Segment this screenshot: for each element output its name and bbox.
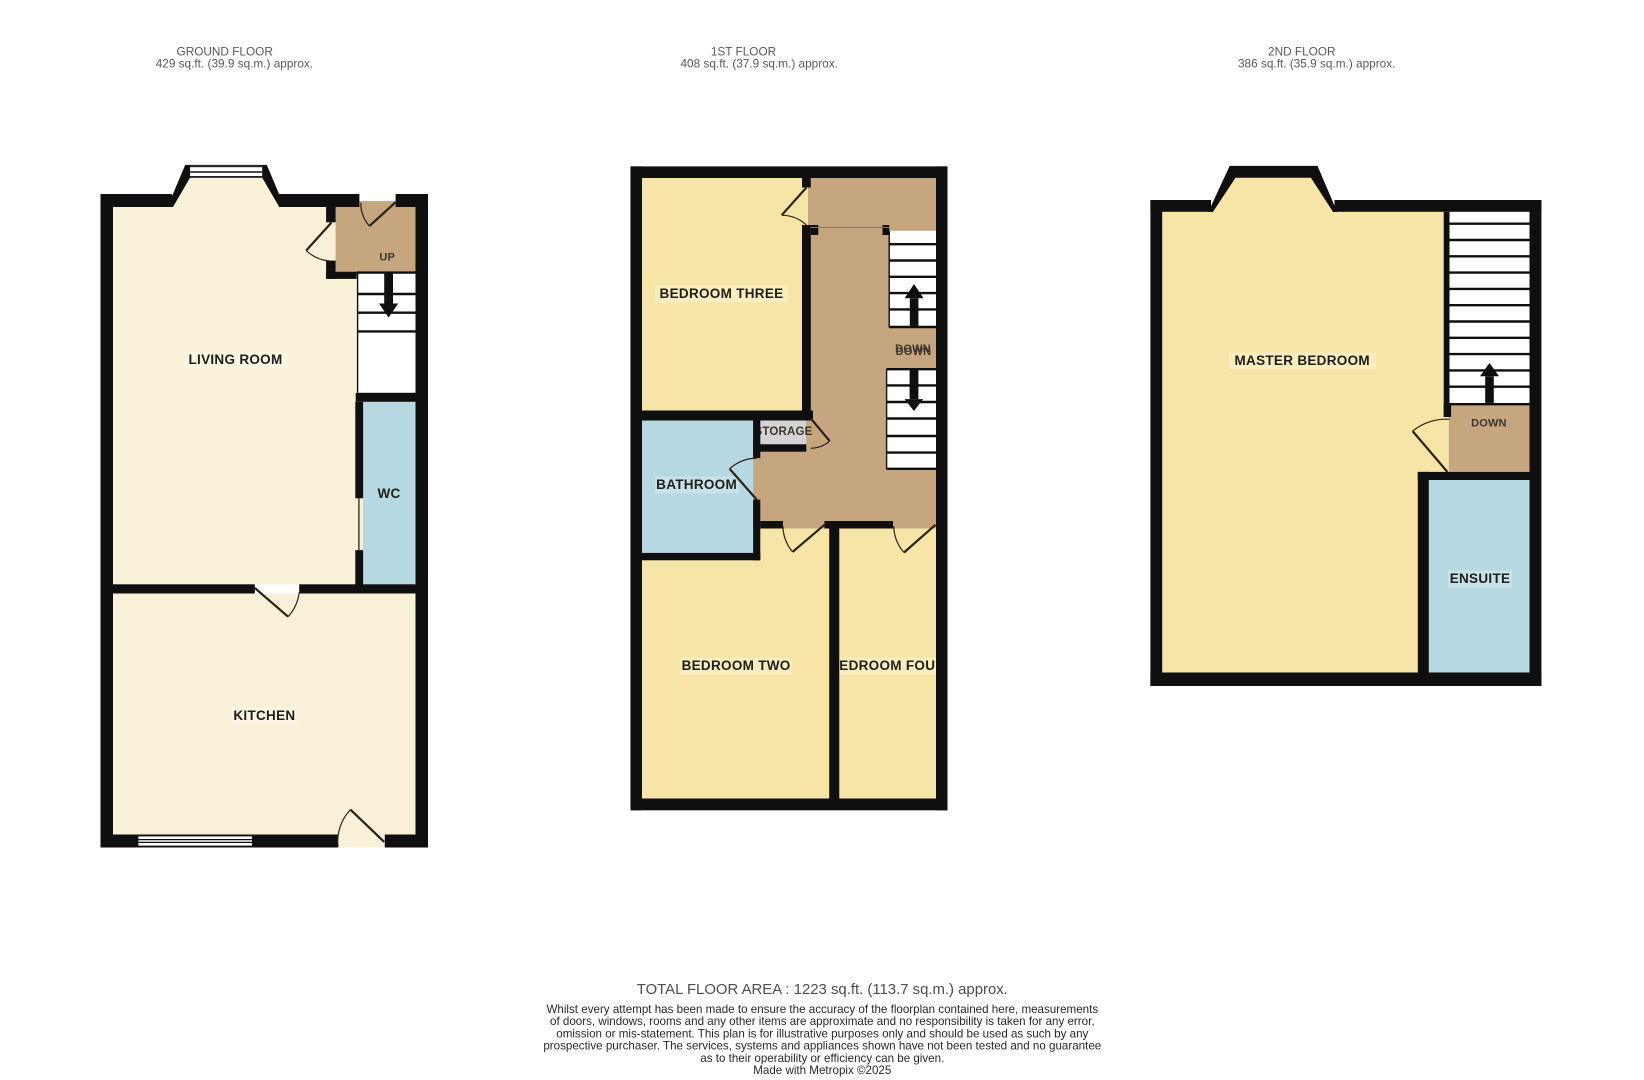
- svg-text:KITCHEN: KITCHEN: [233, 708, 295, 723]
- svg-text:omission or mis-statement. Thi: omission or mis-statement. This plan is …: [556, 1027, 1088, 1040]
- svg-text:DOWN: DOWN: [896, 346, 932, 358]
- svg-text:of doors, windows, rooms and a: of doors, windows, rooms and any other i…: [550, 1015, 1095, 1028]
- svg-text:STORAGE: STORAGE: [754, 426, 812, 438]
- svg-text:386 sq.ft. (35.9 sq.m.) approx: 386 sq.ft. (35.9 sq.m.) approx.: [1238, 56, 1395, 70]
- svg-text:BEDROOM THREE: BEDROOM THREE: [660, 286, 784, 301]
- svg-text:TOTAL FLOOR AREA : 1223 sq.ft.: TOTAL FLOOR AREA : 1223 sq.ft. (113.7 sq…: [637, 982, 1008, 998]
- svg-text:408 sq.ft. (37.9 sq.m.) approx: 408 sq.ft. (37.9 sq.m.) approx.: [681, 56, 838, 70]
- svg-text:UP: UP: [379, 251, 395, 263]
- svg-text:MASTER BEDROOM: MASTER BEDROOM: [1234, 353, 1369, 368]
- svg-text:BEDROOM TWO: BEDROOM TWO: [682, 658, 791, 673]
- svg-text:WC: WC: [377, 486, 400, 501]
- svg-text:Whilst every attempt has been: Whilst every attempt has been made to en…: [546, 1003, 1098, 1016]
- svg-text:prospective purchaser. The ser: prospective purchaser. The services, sys…: [543, 1040, 1101, 1053]
- svg-text:429 sq.ft. (39.9 sq.m.) approx: 429 sq.ft. (39.9 sq.m.) approx.: [156, 56, 313, 70]
- svg-text:DOWN: DOWN: [1471, 418, 1507, 430]
- svg-text:BEDROOM FOUR: BEDROOM FOUR: [829, 658, 945, 673]
- svg-text:Made with Metropix ©2025: Made with Metropix ©2025: [753, 1064, 891, 1077]
- svg-text:BATHROOM: BATHROOM: [656, 477, 737, 492]
- svg-text:ENSUITE: ENSUITE: [1450, 571, 1511, 586]
- svg-text:LIVING ROOM: LIVING ROOM: [188, 352, 282, 367]
- svg-text:as to their operability or eff: as to their operability or efficiency ca…: [700, 1052, 944, 1065]
